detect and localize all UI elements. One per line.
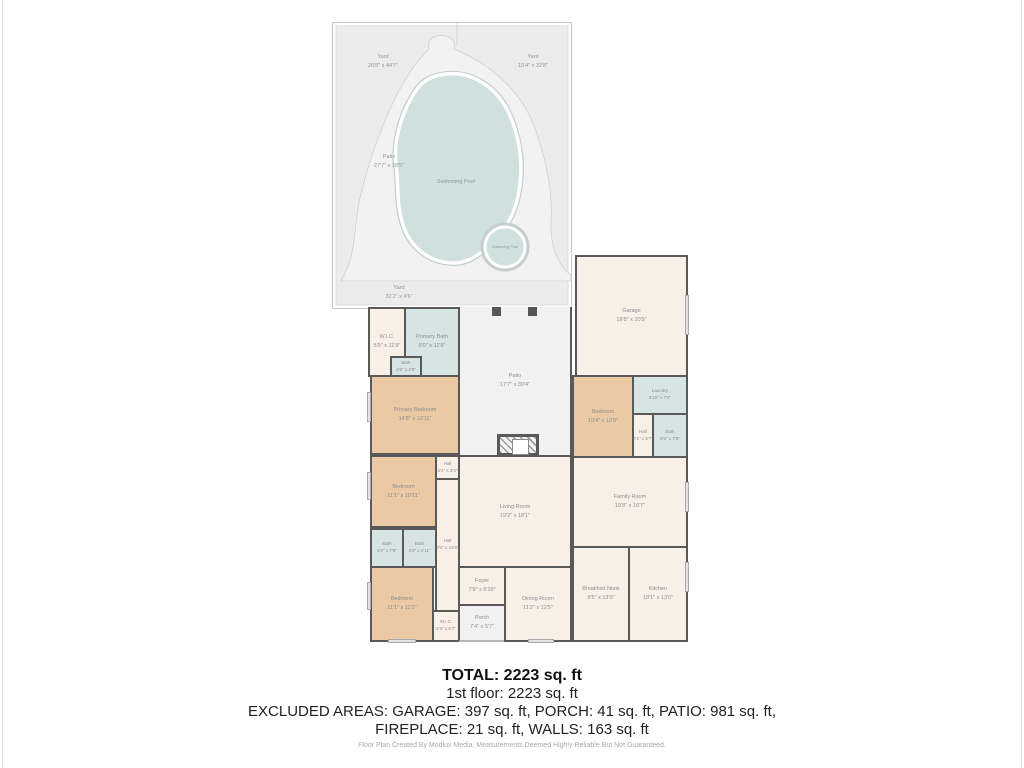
room-dims: 8'10" x 7'5" — [649, 395, 671, 402]
room-dims: 19'2" x 18'1" — [500, 512, 530, 521]
room-dims: 10'4" x 10'8" — [588, 417, 618, 426]
room-foyer: Foyer 7'9" x 6'10" — [458, 566, 506, 606]
room-label: Bath — [401, 360, 410, 367]
left-edge-line — [2, 0, 3, 768]
room-dims: 18'1" x 13'0" — [643, 594, 673, 603]
excluded-areas-line1: EXCLUDED AREAS: GARAGE: 397 sq. ft, PORC… — [0, 703, 1024, 721]
yard-left-name: Yard — [355, 53, 411, 62]
room-primary-bedroom: Primary Bedroom 14'8" x 13'11" — [370, 375, 460, 455]
floor-plan-page: Yard 20'8" x 44'7" Yard 19'4" x 32'8" Pa… — [0, 0, 1024, 768]
room-label: Primary Bedroom — [394, 406, 437, 415]
right-edge-line — [1021, 0, 1022, 768]
excluded-areas-line2: FIREPLACE: 21 sq. ft, WALLS: 163 sq. ft — [0, 721, 1024, 739]
room-label: Living Room — [500, 503, 531, 512]
room-hall-2: Hall 3'4" x 16'5" — [435, 478, 460, 612]
yard-area: Yard 20'8" x 44'7" Yard 19'4" x 32'8" Pa… — [332, 22, 572, 309]
room-dining: Dining Room 11'2" x 12'5" — [504, 566, 572, 642]
patio-post — [528, 307, 537, 316]
room-label: Patio — [509, 372, 522, 381]
room-label: Dining Room — [522, 595, 554, 604]
room-wic-2: W.I.C. 2'4" x 5'7" — [432, 610, 460, 642]
spa-name: Swimming Pool — [483, 244, 527, 250]
fireplace — [497, 434, 539, 456]
area-summary: TOTAL: 2223 sq. ft 1st floor: 2223 sq. f… — [0, 667, 1024, 739]
room-breakfast-nook: Breakfast Nook 9'5" x 13'0" — [572, 546, 630, 642]
room-label: Bath — [382, 541, 391, 548]
room-dims: 19'8" x 16'7" — [615, 502, 645, 511]
window-marker — [367, 582, 371, 610]
room-dims: 3'1" x 5'7" — [633, 436, 653, 443]
room-dims: 11'1" x 11'2" — [387, 604, 416, 613]
yard-left-label: Yard 20'8" x 44'7" — [355, 53, 411, 72]
room-bedroom-4: Bedroom 10'4" x 10'8" — [572, 375, 634, 458]
room-bath-2: Bath 5'9" x 7'8" — [370, 528, 404, 568]
fireplace-opening — [512, 439, 529, 455]
room-bedroom-2: Bedroom 11'1" x 10'11" — [370, 455, 437, 528]
pool-patio-dims: 27'7" x 38'5" — [363, 162, 415, 171]
window-marker — [685, 562, 689, 592]
yard-right-name: Yard — [505, 53, 561, 62]
room-dims: 2'4" x 3'3" — [438, 468, 458, 475]
yard-bottom-name: Yard — [371, 284, 427, 293]
room-dims: 5'9" x 7'8" — [377, 548, 397, 555]
room-label: Bedroom — [392, 483, 414, 492]
swimming-pool-label: Swimming Pool — [426, 178, 486, 187]
room-dims: 11'2" x 12'5" — [523, 604, 553, 613]
room-label: Laundry — [652, 388, 668, 395]
window-marker — [685, 482, 689, 512]
yard-bottom-label: Yard 32'2" x 4'6" — [371, 284, 427, 303]
room-label: Bedroom — [592, 408, 614, 417]
room-hall-1: Hall 2'4" x 3'3" — [435, 455, 460, 480]
window-marker — [528, 639, 554, 643]
room-bath-4: Bath 5'5" x 7'9" — [652, 413, 688, 458]
window-marker — [388, 639, 416, 643]
room-dims: 7'4" x 5'7" — [470, 623, 494, 632]
window-marker — [367, 472, 371, 500]
room-bedroom-3: Bedroom 11'1" x 11'2" — [370, 566, 434, 642]
room-dims: 7'9" x 6'10" — [468, 586, 495, 595]
room-dims: 19'8" x 20'5" — [616, 316, 646, 325]
room-label: Hall — [444, 538, 452, 545]
footer-disclaimer: Floor Plan Created By Modlux Media. Meas… — [0, 742, 1024, 749]
room-dims: 5'5" x 7'9" — [660, 436, 680, 443]
room-label: Bath — [415, 541, 424, 548]
swimming-pool-name: Swimming Pool — [426, 178, 486, 187]
window-marker — [685, 295, 689, 335]
yard-bottom-dims: 32'2" x 4'6" — [371, 293, 427, 302]
patio-post — [492, 307, 501, 316]
room-kitchen: Kitchen 18'1" x 13'0" — [628, 546, 688, 642]
room-label: Breakfast Nook — [582, 585, 620, 594]
room-family: Family Room 19'8" x 16'7" — [572, 456, 688, 548]
room-dims: 5'5" x 11'9" — [374, 342, 401, 351]
room-dims: 4'6" x 2'9" — [396, 367, 416, 374]
yard-right-dims: 19'4" x 32'8" — [505, 62, 561, 71]
room-living: Living Room 19'2" x 18'1" — [458, 455, 572, 568]
room-label: Primary Bath — [416, 333, 448, 342]
room-label: Kitchen — [649, 585, 667, 594]
room-label: W.I.C. — [440, 619, 452, 626]
room-porch: Porch 7'4" x 5'7" — [458, 604, 506, 642]
total-area-text: TOTAL: 2223 sq. ft — [0, 667, 1024, 685]
pool-patio-name: Patio — [363, 153, 415, 162]
room-laundry: Laundry 8'10" x 7'5" — [632, 375, 688, 415]
yard-left-dims: 20'8" x 44'7" — [355, 62, 411, 71]
room-dims: 14'8" x 13'11" — [399, 415, 432, 424]
room-label: Bedroom — [391, 595, 413, 604]
room-dims: 9'5" x 13'0" — [587, 594, 614, 603]
room-bath-3: Bath 5'0" x 4'11" — [402, 528, 437, 568]
room-bath-1: Bath 4'6" x 2'9" — [390, 356, 422, 377]
room-dims: 5'0" x 4'11" — [409, 548, 431, 555]
room-dims: 2'4" x 5'7" — [436, 626, 456, 633]
window-marker — [367, 392, 371, 422]
room-label: Family Room — [614, 493, 646, 502]
room-hall-3: Hall 3'1" x 5'7" — [632, 413, 654, 458]
spa-label: Swimming Pool — [483, 244, 527, 250]
room-label: Garage — [622, 307, 640, 316]
yard-right-label: Yard 19'4" x 32'8" — [505, 53, 561, 72]
room-label: Hall — [444, 461, 452, 468]
room-dims: 3'4" x 16'5" — [436, 545, 458, 552]
room-dims: 17'7" x 39'4" — [500, 381, 530, 390]
room-label: W.I.C. — [380, 333, 395, 342]
room-label: Porch — [475, 614, 489, 623]
room-label: Hall — [639, 429, 647, 436]
room-label: Foyer — [475, 577, 489, 586]
room-label: Bath — [665, 429, 674, 436]
room-garage: Garage 19'8" x 20'5" — [575, 255, 688, 377]
first-floor-text: 1st floor: 2223 sq. ft — [0, 685, 1024, 703]
pool-patio-label: Patio 27'7" x 38'5" — [363, 153, 415, 172]
room-dims: 11'1" x 10'11" — [387, 492, 419, 501]
room-dims: 9'0" x 11'9" — [419, 342, 446, 351]
